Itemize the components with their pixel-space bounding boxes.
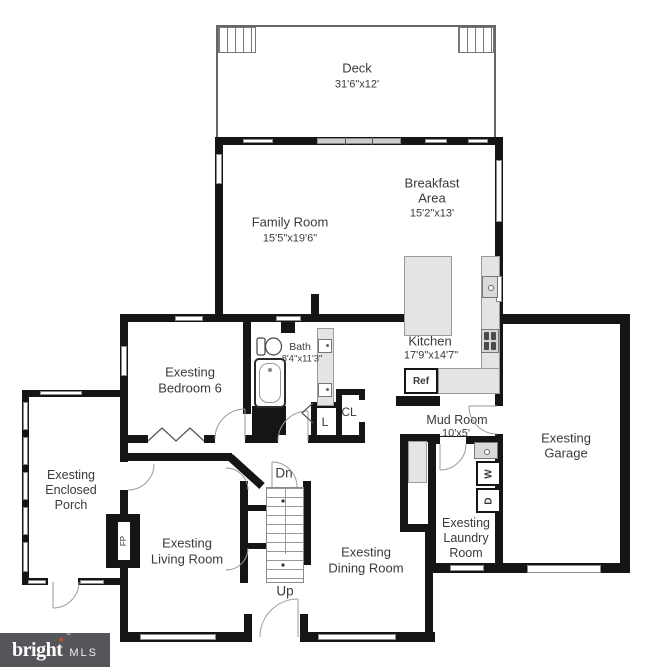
logo-trademark: ™ [66, 634, 71, 639]
door-arc [469, 406, 497, 434]
toilet-icon [257, 338, 265, 355]
door-arc [53, 582, 79, 608]
door-arc [440, 444, 466, 470]
logo-star-icon: ✶ [57, 636, 64, 645]
logo-brand: bright✶™ [12, 640, 62, 660]
door-arc [215, 409, 245, 439]
bright-mls-logo: bright✶™ MLS [0, 633, 110, 667]
door-arc [226, 548, 248, 570]
door-arc [278, 411, 308, 441]
stair-dot [281, 563, 284, 566]
logo-suffix: MLS [69, 647, 98, 659]
door-arc [272, 462, 297, 487]
symbol-overlay [0, 0, 650, 670]
door-arc [260, 599, 298, 637]
toilet-icon [266, 338, 282, 355]
door-arc [128, 464, 154, 490]
stair-dot [281, 499, 284, 502]
bifold-door-icon [148, 428, 204, 441]
logo-brand-text: bright [12, 639, 62, 661]
floor-plan: FP Ref W D [0, 0, 650, 670]
